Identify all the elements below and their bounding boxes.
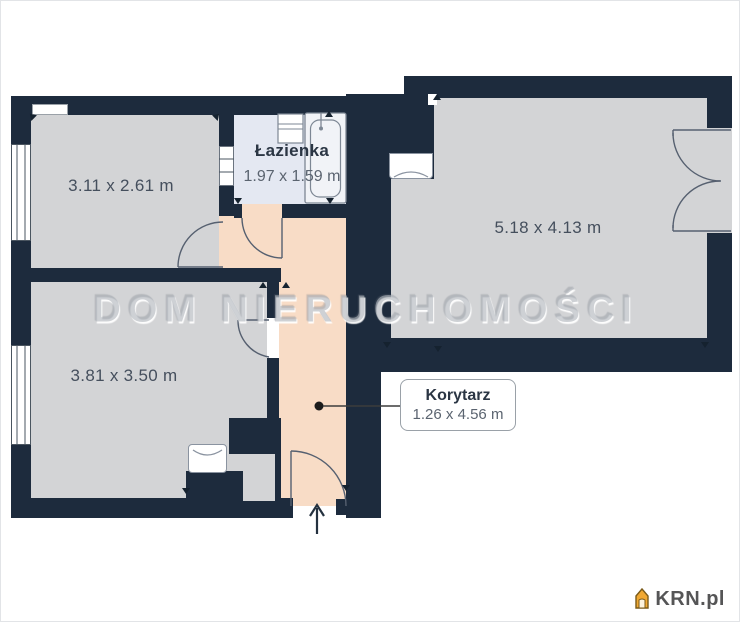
- logo-text: KRN.pl: [655, 588, 725, 611]
- corner-marker-icon: [282, 282, 290, 288]
- corner-marker-icon: [434, 346, 442, 352]
- corridor-dims-label: 1.26 x 4.56 m: [413, 406, 504, 425]
- krn-logo: KRN.pl: [632, 587, 725, 611]
- wall-bath-bottom-left-stub: [234, 204, 242, 218]
- corridor-callout: Korytarz 1.26 x 4.56 m: [400, 379, 516, 431]
- wall-bottom: [11, 498, 293, 518]
- bathroom-door-gap-floor: [242, 204, 282, 218]
- bathroom-name-label: Łazienka: [255, 141, 329, 161]
- corridor-name-label: Korytarz: [426, 386, 491, 406]
- closet-pocket-divider: [275, 454, 281, 501]
- watermark: DOM NIERUCHOMOŚCI: [93, 289, 638, 332]
- entrance-arrow-icon: [310, 505, 324, 534]
- closet-pocket: [243, 454, 276, 501]
- wall-rooms-divider: [31, 268, 281, 282]
- room-large-label: 5.18 x 4.13 m: [495, 218, 602, 238]
- corner-marker-icon: [383, 342, 391, 348]
- bed-niche-fixture: [389, 153, 433, 179]
- wall-right-upper: [707, 76, 732, 128]
- wall-bottom-large-room: [361, 338, 732, 372]
- wall-step-chunk-a: [229, 418, 281, 454]
- wall-corridor-right-lower: [346, 372, 381, 518]
- bathroom-dims-label: 1.97 x 1.59 m: [244, 168, 341, 186]
- corner-marker-icon: [259, 282, 267, 288]
- radiator-niche: [32, 104, 68, 115]
- interior-window: [219, 146, 234, 186]
- corner-marker-icon: [342, 485, 350, 491]
- corridor-hall-floor: [219, 216, 348, 269]
- corner-marker-icon: [234, 198, 242, 204]
- room-top-left-label: 3.11 x 2.61 m: [68, 176, 174, 196]
- house-icon: [632, 587, 652, 611]
- wall-top-large-room: [404, 76, 732, 98]
- floorplan: 3.11 x 2.61 m 3.81 x 3.50 m 5.18 x 4.13 …: [0, 0, 740, 622]
- wall-bath-bottom: [282, 204, 346, 218]
- corner-marker-icon: [433, 94, 441, 100]
- corner-marker-icon: [701, 342, 709, 348]
- wall-room2-corridor-lower: [267, 358, 279, 418]
- room-large-door-gap-floor: [705, 128, 732, 233]
- window-room1: [11, 144, 31, 241]
- window-room2: [11, 345, 31, 445]
- room-bottom-left-label: 3.81 x 3.50 m: [71, 366, 178, 386]
- corner-marker-icon: [325, 111, 333, 117]
- wall-bottom-entrance-stub: [336, 499, 363, 515]
- corner-marker-icon: [326, 198, 334, 204]
- corner-marker-icon: [182, 488, 190, 494]
- room2-fixture: [188, 444, 227, 473]
